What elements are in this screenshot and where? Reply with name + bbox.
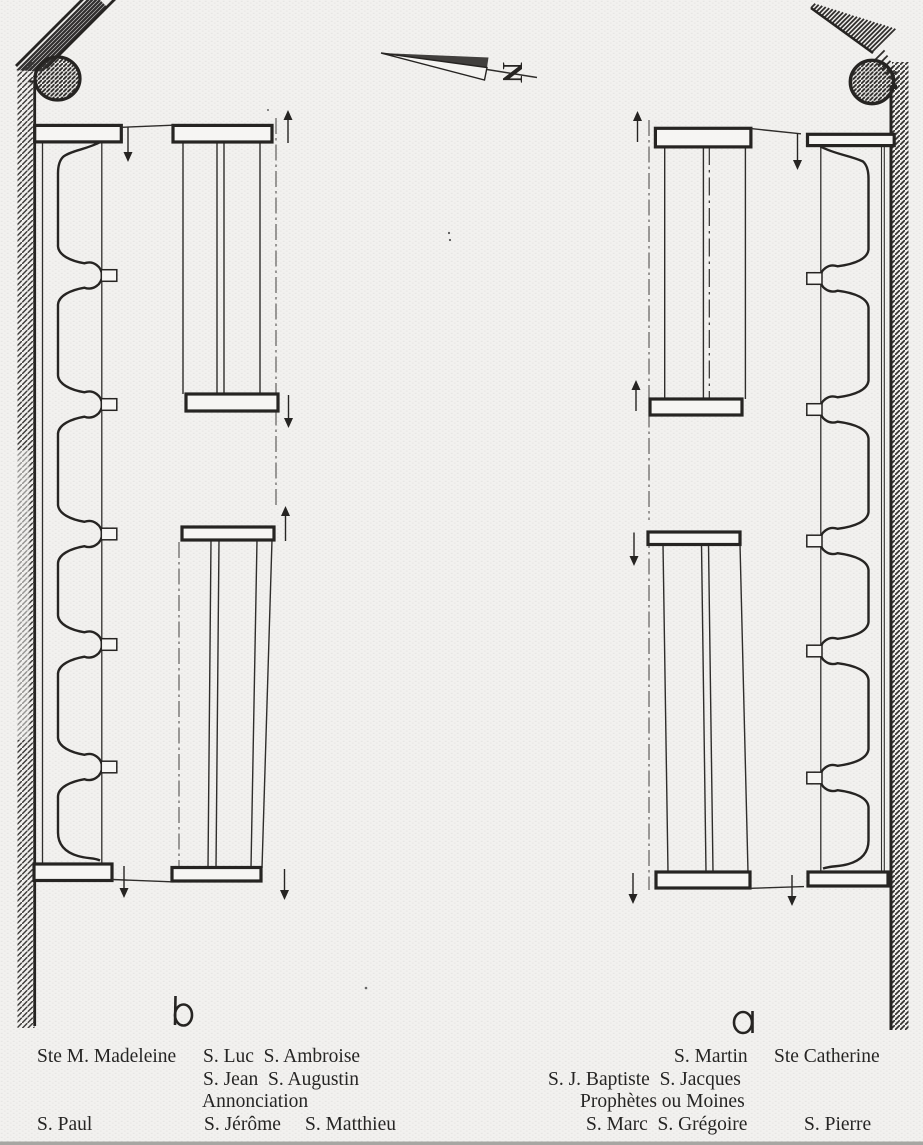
svg-text:S. Pierre: S. Pierre xyxy=(804,1114,871,1135)
svg-text:S. Martin: S. Martin xyxy=(674,1046,748,1067)
svg-text:S. Jean S. Augustin: S. Jean S. Augustin xyxy=(203,1069,359,1090)
svg-text:S. Marc S. Grégoire: S. Marc S. Grégoire xyxy=(586,1114,747,1135)
svg-text:N: N xyxy=(496,62,528,83)
svg-text:S. Luc S. Ambroise: S. Luc S. Ambroise xyxy=(203,1046,360,1067)
svg-text:S. J. Baptiste S. Jacques: S. J. Baptiste S. Jacques xyxy=(548,1069,741,1090)
svg-text:Ste Catherine: Ste Catherine xyxy=(774,1046,880,1067)
svg-text:S. Paul: S. Paul xyxy=(37,1114,93,1135)
svg-text:S. Matthieu: S. Matthieu xyxy=(305,1114,396,1135)
svg-text:Prophètes ou Moines: Prophètes ou Moines xyxy=(580,1091,745,1112)
svg-text:Annonciation: Annonciation xyxy=(202,1091,308,1112)
svg-text:S. Jérôme: S. Jérôme xyxy=(204,1114,281,1135)
svg-text:Ste M. Madeleine: Ste M. Madeleine xyxy=(37,1046,176,1067)
